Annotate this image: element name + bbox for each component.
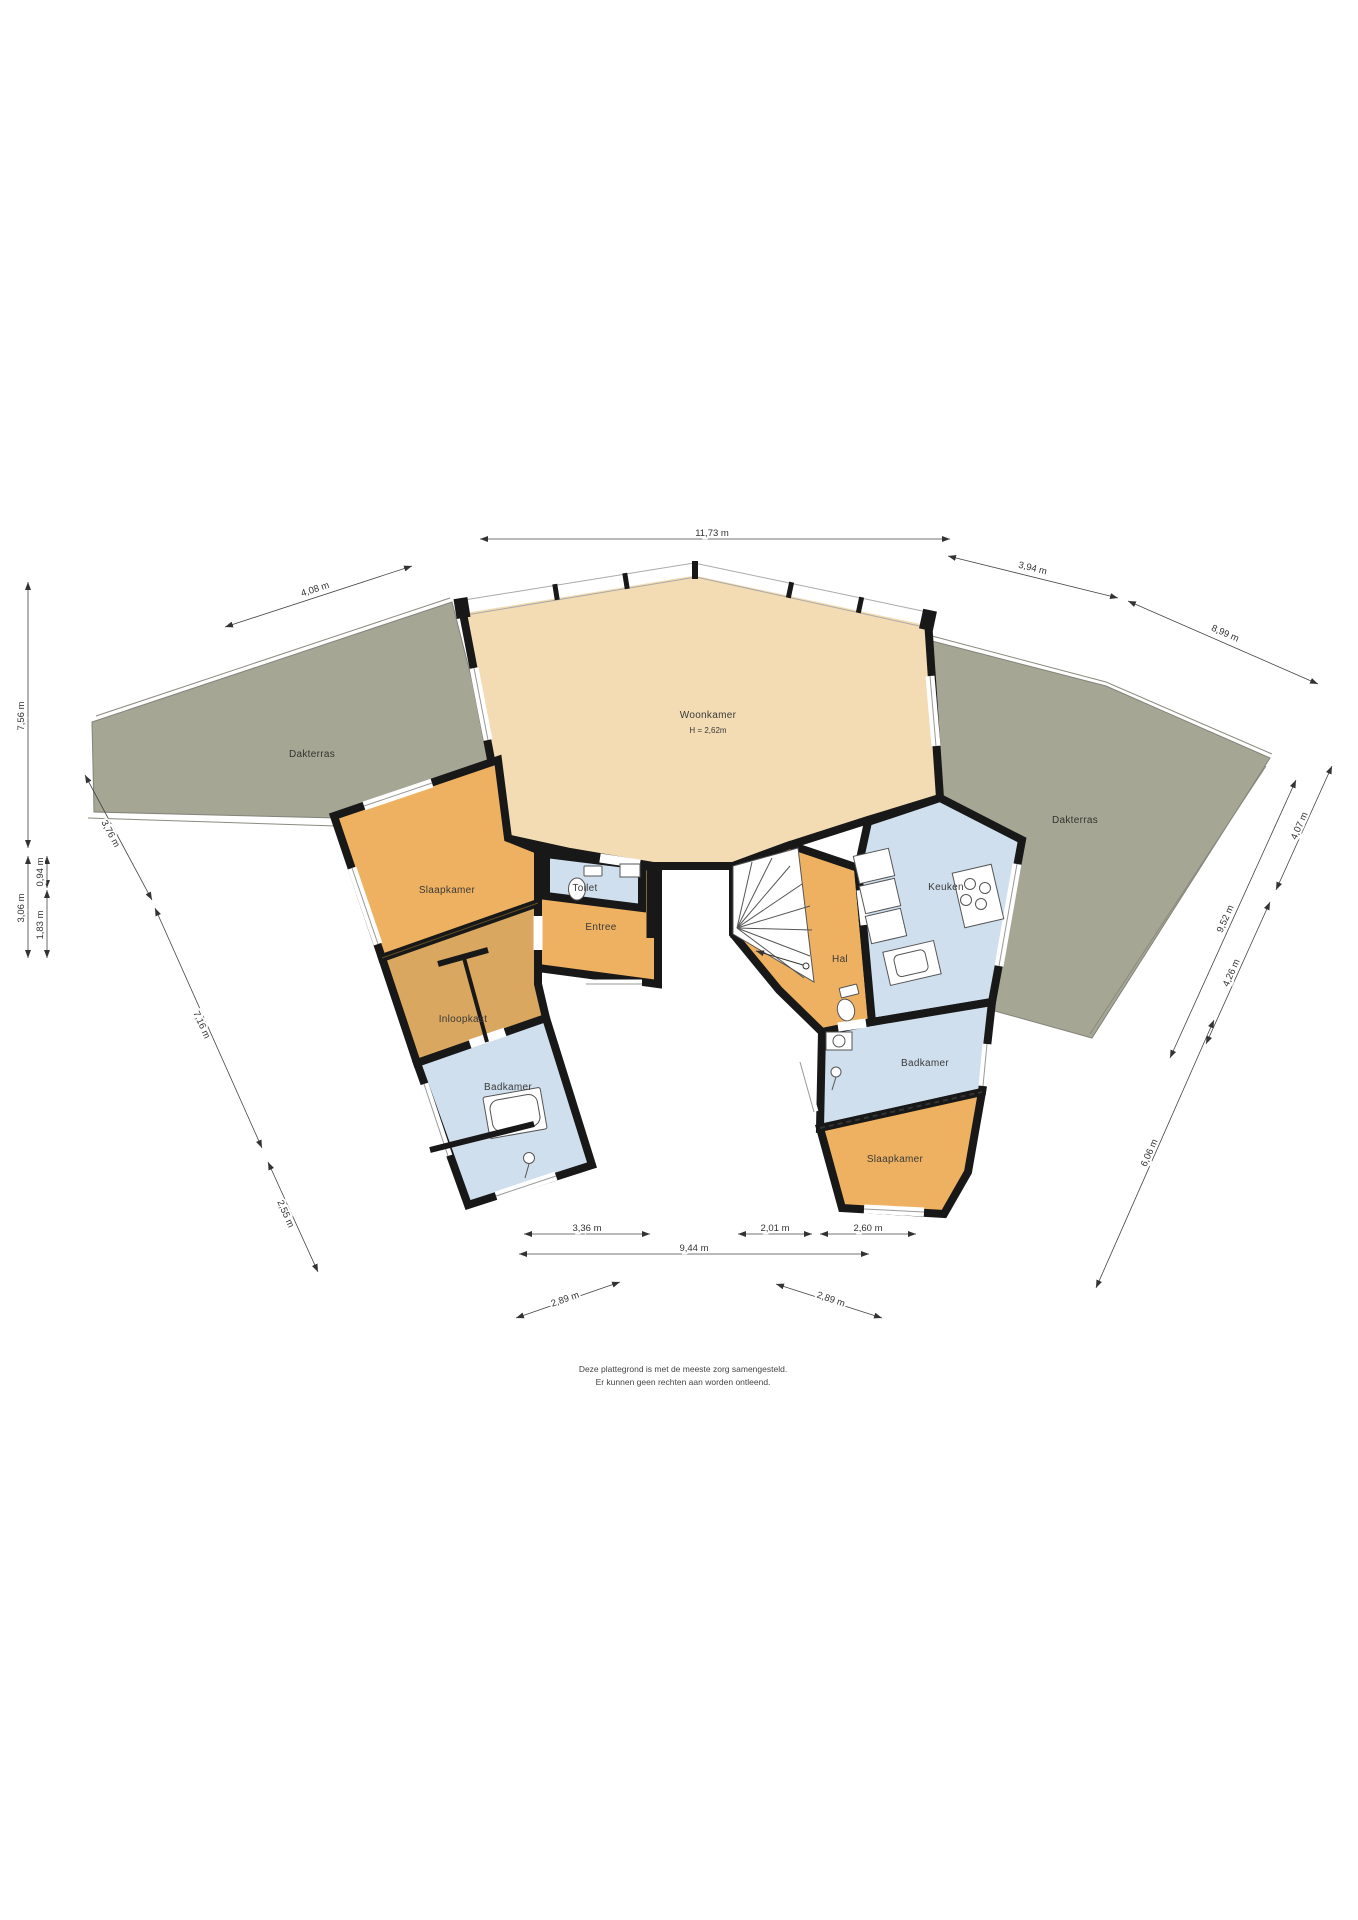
dimension-label-top-left: 4,08 m	[300, 580, 331, 599]
room-label-badkamer-left: Badkamer	[484, 1082, 532, 1093]
room-label-slaapkamer-right: Slaapkamer	[867, 1154, 924, 1165]
dimension-label-left-4: 0,94 m	[35, 857, 46, 886]
facade-mullion	[919, 609, 937, 631]
room-label-entree: Entree	[585, 922, 616, 933]
shower-head-icon	[831, 1067, 841, 1077]
dimension-line-top-left	[225, 566, 412, 627]
disclaimer-layer: Deze plattegrond is met de meeste zorg s…	[579, 1364, 787, 1387]
room-label-badkamer-right: Badkamer	[901, 1058, 949, 1069]
facade-mullion	[454, 597, 471, 619]
dimension-label-left-wing-diag: 7,16 m	[190, 1009, 212, 1040]
room-label-slaapkamer-left: Slaapkamer	[419, 885, 476, 896]
dimension-label-bottom-2: 2,01 m	[760, 1223, 789, 1234]
room-label-inloopkast: Inloopkast	[439, 1014, 488, 1025]
floorplan-page: DakterrasDakterrasWoonkamerH = 2,62mSlaa…	[0, 0, 1358, 1920]
dimension-label-right-3: 4,26 m	[1221, 957, 1243, 988]
facade-mullion	[692, 561, 698, 579]
dimension-line-right-3	[1206, 902, 1270, 1044]
dimension-label-right-1: 4,07 m	[1289, 810, 1311, 841]
dimension-label-left-terrace-diag: 3,76 m	[99, 818, 122, 849]
dimension-line-top-right-2	[1128, 601, 1318, 684]
disclaimer-line1: Deze plattegrond is met de meeste zorg s…	[579, 1364, 787, 1374]
dimension-label-right-4: 6,06 m	[1139, 1137, 1161, 1168]
disclaimer-line2: Er kunnen geen rechten aan worden ontlee…	[596, 1377, 771, 1387]
room-label-hal: Hal	[832, 954, 848, 965]
floorplan-canvas: DakterrasDakterrasWoonkamerH = 2,62mSlaa…	[0, 0, 1358, 1920]
dimension-label-left-3: 1,83 m	[35, 910, 46, 939]
dimension-label-top-right-2: 8,99 m	[1210, 623, 1241, 645]
dimension-label-bottom-total: 9,44 m	[679, 1243, 708, 1254]
terrace-label: Dakterras	[1052, 815, 1098, 826]
dimension-label-top-width: 11,73 m	[695, 528, 729, 539]
door-opening	[838, 1023, 866, 1027]
door-opening	[600, 858, 640, 864]
dimension-label-left-bottom-diag: 2,55 m	[274, 1198, 296, 1229]
terrace-railing	[88, 818, 336, 826]
washbasin	[620, 864, 640, 877]
room-label-keuken: Keuken	[928, 882, 964, 893]
shower-head-icon	[524, 1153, 535, 1164]
window-glass-line	[800, 1062, 814, 1112]
room-height-label: H = 2,62m	[689, 726, 726, 735]
room-label-woonkamer: Woonkamer	[680, 710, 737, 721]
dimension-label-bottom-3: 2,60 m	[853, 1223, 882, 1234]
toilet-cistern	[584, 866, 602, 876]
room-label-toilet: Toilet	[572, 883, 597, 894]
dimension-label-top-right-1: 3,94 m	[1017, 560, 1048, 578]
dimension-label-left-2: 3,06 m	[16, 893, 27, 922]
dimension-label-bottom-left-diag: 2,89 m	[550, 1290, 581, 1310]
terrace-label: Dakterras	[289, 749, 335, 760]
dimension-label-bottom-right-diag: 2,89 m	[815, 1290, 846, 1310]
dimension-label-bottom-1: 3,36 m	[572, 1223, 601, 1234]
dimension-label-left-1: 7,56 m	[16, 701, 27, 730]
